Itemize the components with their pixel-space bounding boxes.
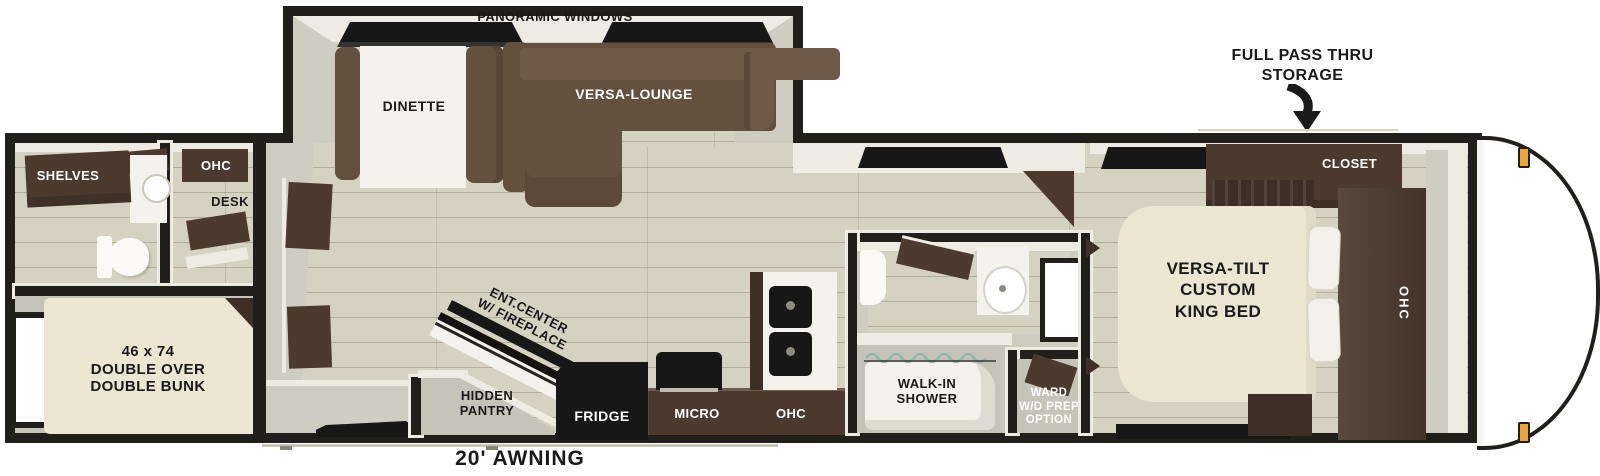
- kitchen-ohc-label: OHC: [766, 406, 816, 421]
- living-left-trim: [282, 178, 286, 373]
- fridge: [556, 362, 648, 440]
- wall-table-upper: [285, 182, 332, 250]
- closet-label: CLOSET: [1302, 156, 1397, 171]
- dinette-table: [360, 46, 466, 188]
- bunk-size: 46 x 74: [58, 343, 238, 361]
- versa-lounge-back-cushions: [520, 48, 760, 80]
- marker-light-top: [1518, 147, 1530, 168]
- dinette-label: DINETTE: [368, 98, 460, 115]
- awning-label: 20' AWNING: [420, 447, 620, 472]
- sink-basin-lower: [769, 332, 812, 376]
- marker-light-bottom: [1518, 422, 1530, 443]
- hidden-pantry-line2: PANTRY: [428, 403, 546, 418]
- king-bed-line3: KING BED: [1128, 301, 1308, 322]
- desk-label: DESK: [206, 194, 254, 209]
- microwave-base: [660, 388, 718, 392]
- storage-area-line: [1198, 129, 1398, 131]
- king-bed-label: VERSA-TILT CUSTOM KING BED: [1128, 258, 1308, 322]
- versa-lounge-chaise: [525, 125, 622, 207]
- dinette-bench-left: [335, 47, 360, 180]
- bath-top-trim: [857, 242, 1081, 251]
- panoramic-window-left: [337, 22, 525, 47]
- pantry-left-wall: [411, 377, 421, 435]
- walk-in-line2: SHOWER: [872, 391, 982, 406]
- rear-ohc-label: OHC: [192, 158, 240, 173]
- bunk-line2: DOUBLE OVER: [58, 361, 238, 379]
- bath-sink-drain: [999, 285, 1006, 292]
- bunk-line3: DOUBLE BUNK: [58, 378, 238, 396]
- microwave: [656, 352, 722, 390]
- sink-drains: [786, 301, 795, 310]
- bath-left-wall: [848, 233, 857, 433]
- micro-label: MICRO: [664, 406, 730, 421]
- toilet-bowl: [109, 238, 149, 276]
- ward-line1: WARD: [1010, 387, 1088, 401]
- walk-in-line1: WALK-IN: [872, 376, 982, 391]
- bedroom-ohc-wardrobe: [1338, 188, 1426, 440]
- bath-toilet: [860, 250, 886, 305]
- dinette-bench-right: [466, 46, 504, 183]
- full-pass-thru-label: FULL PASS THRU STORAGE: [1200, 46, 1405, 86]
- wall-table-lower: [287, 305, 332, 368]
- kitchen-tall-cabinet: [750, 272, 763, 390]
- floorplan-canvas: FULL PASS THRU STORAGE PANORAMIC WINDOWS…: [0, 0, 1600, 476]
- full-pass-thru-line1: FULL PASS THRU: [1200, 46, 1405, 66]
- bedroom-left-wall: [1081, 233, 1090, 433]
- ward-line3: OPTION: [1010, 414, 1088, 428]
- king-bed-line2: CUSTOM: [1128, 279, 1308, 300]
- rear-divider-wall: [253, 143, 266, 433]
- pillow-lower: [1307, 297, 1341, 362]
- bed-foot-cabinet: [1248, 394, 1312, 436]
- bedroom-front-trim: [1448, 150, 1467, 433]
- front-cap: [1477, 136, 1600, 450]
- bath-top-wall: [848, 233, 1090, 242]
- shower-glass-icon: [864, 350, 996, 364]
- panoramic-windows-label: PANORAMIC WINDOWS: [430, 9, 680, 24]
- bedroom-ohc-label: OHC: [1396, 275, 1411, 331]
- full-pass-thru-line2: STORAGE: [1200, 66, 1405, 86]
- ward-label: WARD W/D PREP OPTION: [1010, 387, 1088, 428]
- pillow-upper: [1307, 225, 1341, 290]
- awning-arm-left: [280, 446, 292, 450]
- hidden-pantry-line1: HIDDEN: [428, 388, 546, 403]
- bath-window: [1040, 258, 1084, 342]
- hidden-pantry-label: HIDDEN PANTRY: [428, 388, 546, 419]
- bedroom-front-gray-band: [1426, 150, 1448, 433]
- rear-horizontal-wall: [15, 286, 253, 296]
- versa-lounge-label: VERSA-LOUNGE: [548, 86, 720, 103]
- versa-lounge-armrest: [744, 52, 774, 130]
- fridge-label: FRIDGE: [562, 408, 642, 425]
- pantry-top-trim: [418, 370, 468, 378]
- ward-line2: W/D PREP: [1010, 401, 1088, 415]
- closet-hanging-clothes: [1212, 180, 1314, 206]
- shower-divider-trim: [857, 333, 1012, 345]
- king-bed-line1: VERSA-TILT: [1128, 258, 1308, 279]
- shelves-label: SHELVES: [28, 168, 108, 183]
- walk-in-shower-label: WALK-IN SHOWER: [872, 376, 982, 407]
- storage-arrow-icon: [1280, 84, 1326, 134]
- hall-window: [858, 147, 1008, 168]
- rear-bath-sink: [142, 174, 171, 203]
- bunk-label: 46 x 74 DOUBLE OVER DOUBLE BUNK: [58, 343, 238, 396]
